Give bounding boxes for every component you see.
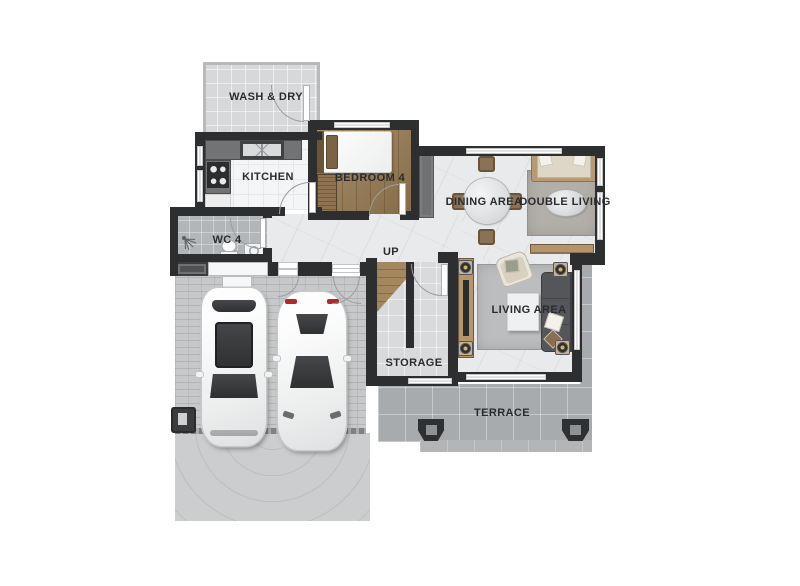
door-leaf: [441, 264, 448, 296]
car-suv: [202, 288, 266, 446]
room-label-storage: STORAGE: [386, 357, 443, 369]
speaker: [458, 341, 473, 356]
kitchen-sink: [240, 141, 284, 159]
car-taillight: [285, 299, 297, 304]
window: [597, 158, 603, 186]
car-mirror: [265, 372, 272, 377]
car-windshield: [290, 356, 334, 388]
wall: [268, 262, 278, 276]
bench-counter: [208, 262, 268, 276]
car-windshield: [210, 374, 258, 398]
floor-plan: WASH & DRY KITCHEN BEDROOM 4 DINING AREA…: [0, 0, 800, 586]
window: [334, 122, 390, 128]
hallway-floor: [266, 214, 462, 266]
stairs-label-up: UP: [383, 246, 399, 258]
wall: [298, 262, 332, 276]
terrace-column-inner: [570, 425, 581, 435]
sliding-door: [466, 374, 546, 380]
window: [574, 270, 580, 350]
terrace-column-inner: [426, 425, 437, 435]
dining-chair: [478, 229, 495, 245]
tall-cabinet: [419, 150, 434, 218]
window: [466, 148, 562, 154]
room-label-dining: DINING AREA: [446, 196, 523, 208]
wall: [438, 252, 458, 263]
car-sports: [278, 292, 346, 450]
garage-side-door: [278, 262, 298, 276]
garage-double-door: [332, 264, 360, 273]
wall: [366, 258, 377, 386]
wall: [263, 207, 272, 218]
wall: [448, 252, 458, 386]
wall: [170, 262, 178, 276]
speaker: [555, 340, 570, 355]
speaker: [553, 262, 568, 277]
car-bumper: [210, 430, 258, 436]
planter-box: [176, 262, 208, 276]
armchair-pillow: [504, 259, 519, 273]
car-mirror: [344, 356, 351, 361]
room-label-terrace: TERRACE: [474, 407, 530, 419]
car-mirror: [196, 372, 203, 377]
window: [197, 146, 203, 166]
speaker: [458, 260, 473, 275]
door-leaf: [399, 183, 406, 215]
bed-pillow: [326, 135, 338, 169]
kitchen-stove: [207, 162, 229, 188]
window: [197, 170, 203, 202]
car-rear-window: [212, 300, 256, 312]
door-leaf: [309, 182, 316, 213]
room-label-living: LIVING AREA: [492, 304, 567, 316]
wall: [308, 211, 369, 220]
sink-basin: [243, 144, 281, 156]
room-label-wc4: WC 4: [212, 234, 241, 246]
room-label-bedroom4: BEDROOM 4: [335, 172, 405, 184]
room-label-kitchen: KITCHEN: [242, 171, 294, 183]
car-sunroof: [215, 322, 253, 368]
storage-window: [408, 378, 452, 384]
gate-column-inner: [178, 413, 187, 425]
dining-chair: [478, 156, 495, 172]
wall: [195, 132, 322, 140]
door-leaf: [303, 85, 310, 121]
shower-icon: [180, 234, 202, 256]
wall: [170, 254, 272, 262]
room-label-double-living: DOUBLE LIVING: [519, 196, 610, 208]
car-mirror: [273, 356, 280, 361]
room-label-wash-dry: WASH & DRY: [229, 91, 303, 103]
tv: [463, 280, 469, 336]
terrace-step: [420, 440, 592, 452]
entry-step: [222, 276, 252, 288]
wall: [411, 120, 419, 220]
